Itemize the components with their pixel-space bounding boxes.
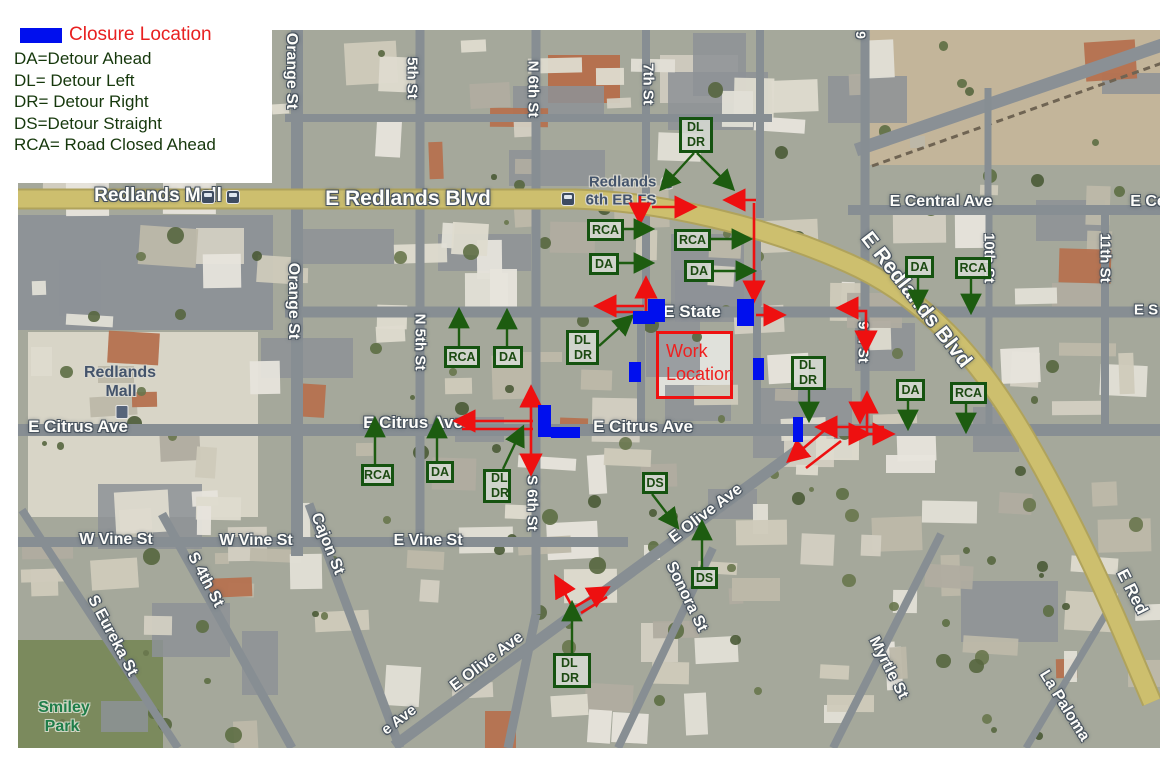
- detour-sign-text: DA: [690, 264, 708, 279]
- closure-location-label: Closure Location: [69, 24, 212, 46]
- legend-item-rca: RCA= Road Closed Ahead: [14, 134, 216, 156]
- detour-sign-text: DL: [687, 120, 704, 135]
- detour-sign-text: RCA: [364, 468, 391, 483]
- detour-sign-text: DA: [595, 257, 613, 272]
- legend-item-da: DA=Detour Ahead: [14, 48, 216, 70]
- detour-sign-rca: RCA: [674, 229, 711, 251]
- detour-sign-ds: DS: [691, 567, 718, 589]
- detour-sign-rca: RCA: [950, 382, 987, 404]
- detour-sign-text: DR: [561, 671, 579, 686]
- detour-sign-da: DA: [426, 461, 454, 483]
- detour-sign-da: DA: [896, 379, 925, 401]
- detour-sign-text: DA: [499, 350, 517, 365]
- work-location-label-line1: Work: [666, 340, 730, 363]
- traffic-control-map-page: E Redlands BlvdRedlands MallE Central Av…: [0, 0, 1165, 780]
- detour-sign-da: DA: [589, 253, 619, 275]
- detour-sign-text: DL: [561, 656, 578, 671]
- closure-marker: [753, 358, 764, 380]
- detour-sign-text: RCA: [448, 350, 475, 365]
- detour-sign-ds: DS: [642, 472, 668, 494]
- closure-marker: [793, 417, 803, 442]
- detour-sign-da: DA: [684, 260, 714, 282]
- detour-route-arrow: [581, 597, 607, 613]
- detour-sign-text: DR: [574, 348, 592, 363]
- detour-sign-dl-dr: DLDR: [679, 117, 713, 153]
- detour-sign-text: DR: [687, 135, 705, 150]
- detour-sign-dl-dr: DLDR: [553, 653, 591, 688]
- closure-marker: [633, 311, 655, 324]
- detour-sign-text: RCA: [959, 261, 986, 276]
- detour-sign-dl-dr: DLDR: [791, 356, 826, 390]
- detour-sign-rca: RCA: [361, 464, 394, 486]
- sign-pointer-arrow: [664, 153, 694, 186]
- detour-route-arrow: [806, 441, 841, 468]
- closure-marker: [737, 299, 754, 326]
- sign-pointer-arrow: [697, 153, 730, 186]
- work-location-box: Work Location: [656, 331, 733, 399]
- legend: Closure Location DA=Detour Ahead DL= Det…: [0, 0, 272, 183]
- detour-sign-da: DA: [905, 256, 934, 278]
- legend-item-dl: DL= Detour Left: [14, 70, 216, 92]
- bottom-margin: [0, 748, 1165, 780]
- detour-sign-dl-dr: DLDR: [483, 469, 511, 503]
- detour-sign-da: DA: [493, 346, 523, 368]
- closure-location-swatch: [20, 28, 62, 43]
- closure-marker: [551, 427, 580, 438]
- detour-sign-text: DS: [696, 571, 713, 586]
- sign-pointer-arrow: [599, 319, 629, 346]
- detour-sign-text: DA: [901, 383, 919, 398]
- detour-sign-dl-dr: DLDR: [566, 330, 599, 365]
- detour-route-arrow: [846, 311, 866, 346]
- sign-pointer-arrow: [503, 431, 521, 469]
- legend-item-ds: DS=Detour Straight: [14, 113, 216, 135]
- legend-abbreviations: DA=Detour Ahead DL= Detour Left DR= Deto…: [14, 48, 216, 156]
- detour-sign-text: DA: [910, 260, 928, 275]
- detour-sign-text: DR: [491, 486, 509, 501]
- right-margin: [1160, 0, 1165, 780]
- detour-sign-rca: RCA: [587, 219, 624, 241]
- detour-sign-text: DL: [799, 358, 816, 373]
- closure-marker: [538, 405, 551, 437]
- closure-marker: [629, 362, 641, 382]
- work-location-label-line2: Location: [666, 363, 730, 386]
- detour-route-arrow: [558, 581, 573, 608]
- sign-pointer-arrow: [652, 494, 675, 524]
- detour-sign-text: RCA: [592, 223, 619, 238]
- legend-item-dr: DR= Detour Right: [14, 91, 216, 113]
- detour-sign-text: DS: [646, 476, 663, 491]
- detour-sign-text: RCA: [679, 233, 706, 248]
- detour-sign-text: DL: [491, 471, 508, 486]
- detour-sign-text: RCA: [955, 386, 982, 401]
- detour-route-arrow: [573, 590, 604, 608]
- detour-sign-text: DR: [799, 373, 817, 388]
- detour-sign-rca: RCA: [444, 346, 480, 368]
- detour-sign-text: DA: [431, 465, 449, 480]
- detour-sign-text: DL: [574, 333, 591, 348]
- detour-sign-rca: RCA: [955, 257, 991, 279]
